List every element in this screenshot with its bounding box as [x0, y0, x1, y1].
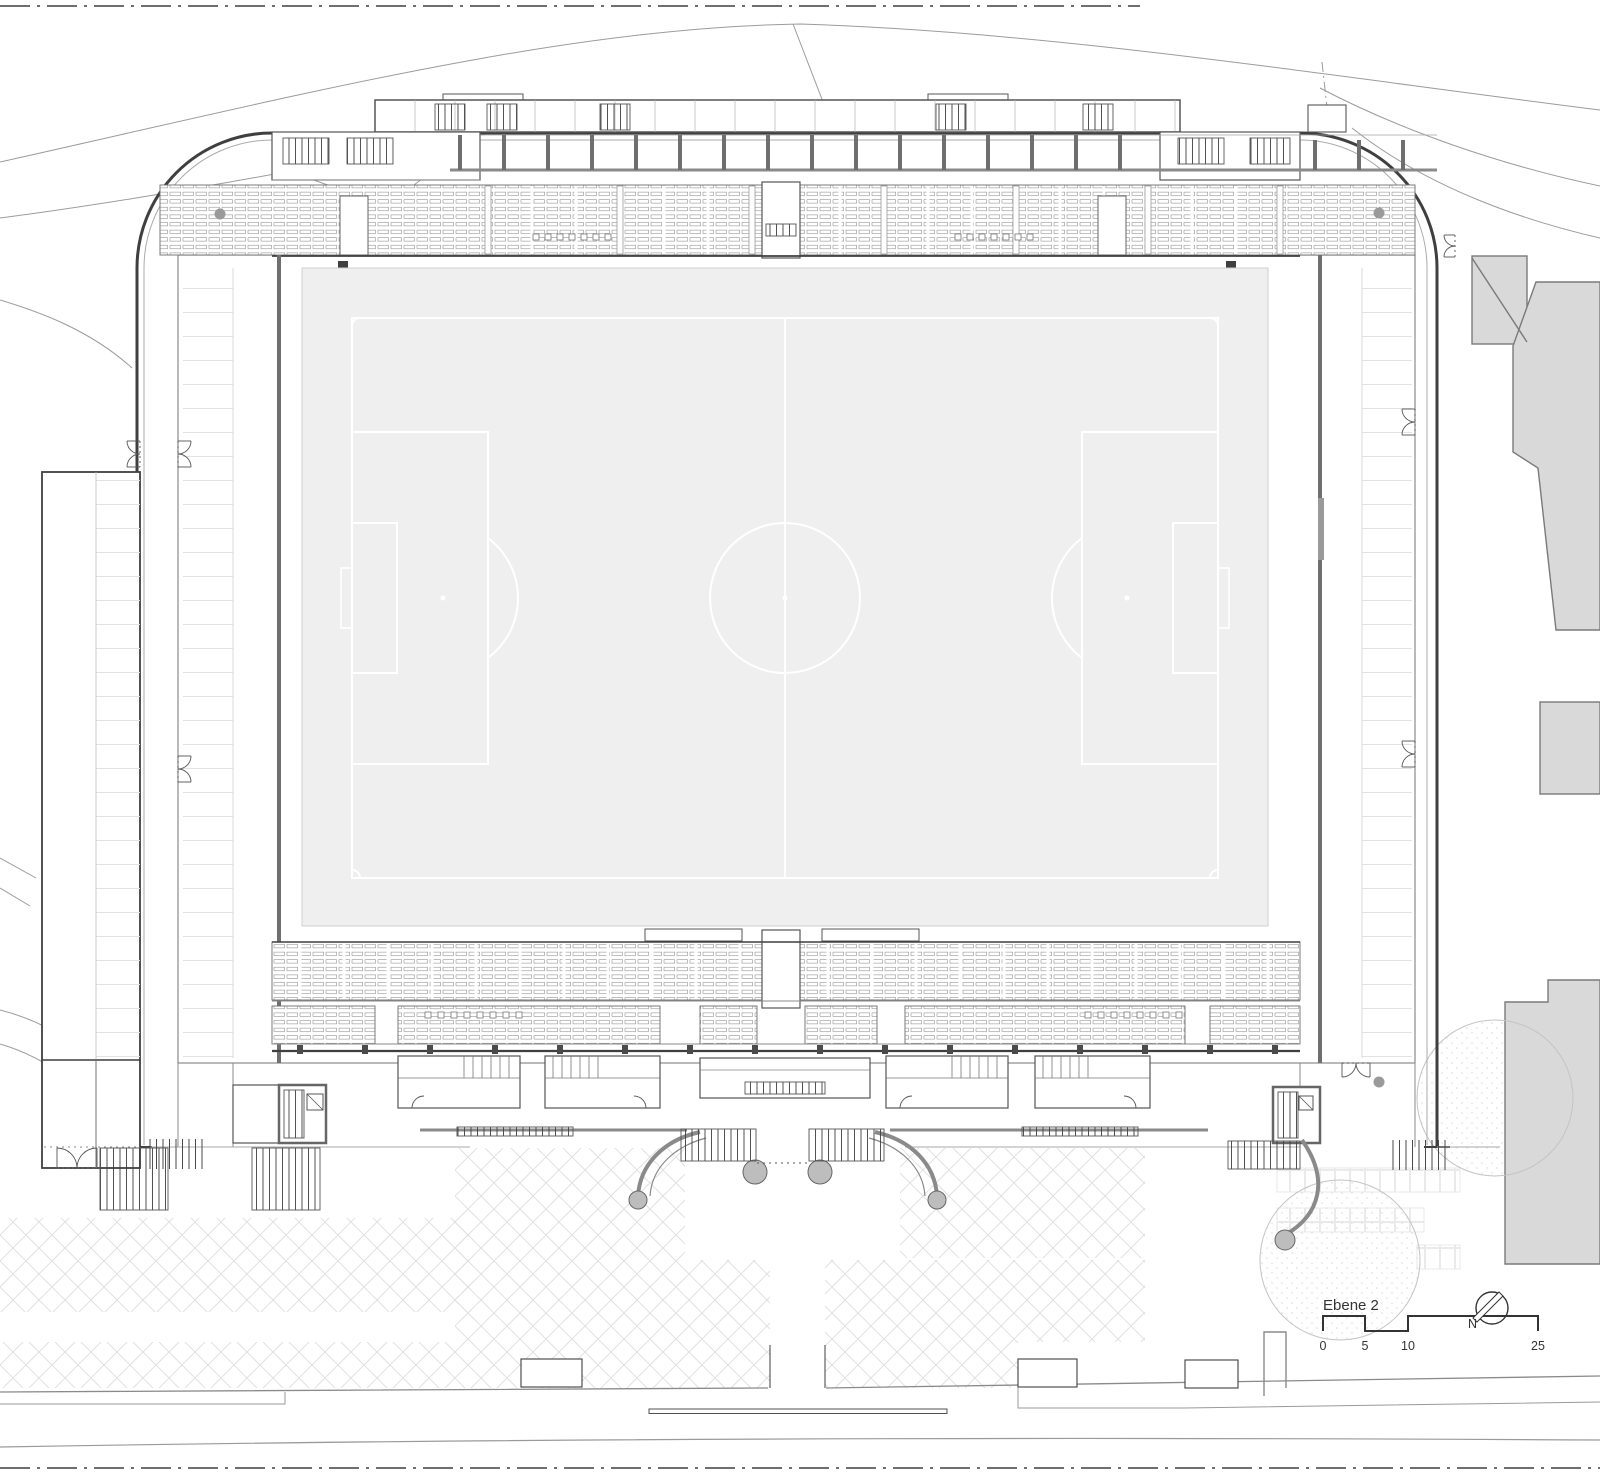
- seat-marker: [503, 1012, 509, 1018]
- camera-platform: [822, 929, 919, 941]
- wall-fragment: [1264, 1332, 1286, 1396]
- paving-patch: [0, 1342, 770, 1388]
- pier: [485, 186, 491, 254]
- seat-marker: [438, 1012, 444, 1018]
- seat-marker: [533, 234, 539, 240]
- column: [557, 1045, 563, 1054]
- column: [1077, 1045, 1083, 1054]
- column: [1118, 135, 1122, 170]
- seat-marker: [581, 234, 587, 240]
- column: [546, 135, 550, 170]
- column-base: [1275, 1230, 1295, 1250]
- column: [882, 1045, 888, 1054]
- stair-flight: [936, 104, 966, 130]
- seat-block: [272, 1006, 375, 1044]
- stair-flight: [1228, 1141, 1300, 1169]
- paving-patch: [825, 1342, 1018, 1388]
- seat-marker: [425, 1012, 431, 1018]
- stair-flight: [347, 138, 393, 164]
- shelter: [1185, 1360, 1238, 1388]
- stair-flight: [1022, 1127, 1138, 1136]
- stair-flight: [809, 1129, 884, 1161]
- stair-flight: [100, 1148, 168, 1210]
- seat-marker: [490, 1012, 496, 1018]
- street-edge: [0, 1438, 1600, 1447]
- stair-flight: [745, 1082, 825, 1094]
- seat-marker: [991, 234, 997, 240]
- pier: [617, 186, 623, 254]
- column: [817, 1045, 823, 1054]
- column: [1313, 140, 1317, 170]
- seat-block: [398, 1006, 660, 1044]
- pier: [749, 186, 755, 254]
- site-plan-drawing: Ebene 2 0 5 10 25 N: [0, 0, 1600, 1474]
- stair-flight: [284, 1090, 304, 1138]
- context-building: [1513, 282, 1600, 630]
- room-outline: [398, 1056, 520, 1108]
- seat-marker: [1098, 1012, 1104, 1018]
- column: [1272, 1045, 1278, 1054]
- tree-canopy: [1417, 1020, 1573, 1176]
- column: [1030, 135, 1034, 170]
- seat-block: [805, 1006, 877, 1044]
- parking-row: [1417, 1245, 1460, 1269]
- seat-marker: [545, 234, 551, 240]
- curb-step: [0, 1392, 285, 1404]
- column: [1074, 135, 1078, 170]
- north-arrow-circle: [1476, 1292, 1508, 1324]
- stair-flight: [600, 104, 630, 130]
- paving-patch: [455, 1260, 770, 1342]
- door-leaf-arc: [1444, 246, 1455, 257]
- pier: [1145, 186, 1151, 254]
- east-bowl-wall: [1318, 255, 1322, 1063]
- column: [502, 135, 506, 170]
- tree-dot: [1374, 208, 1385, 219]
- seat-marker: [1176, 1012, 1182, 1018]
- seat-marker: [979, 234, 985, 240]
- seat-marker: [1137, 1012, 1143, 1018]
- column-base: [629, 1191, 647, 1209]
- stair-flight: [681, 1129, 756, 1161]
- scale-tick-25: 25: [1531, 1339, 1545, 1353]
- column: [1207, 1045, 1213, 1054]
- level-label: Ebene 2: [1323, 1297, 1379, 1314]
- stair-flight: [435, 104, 465, 130]
- seat-marker: [593, 234, 599, 240]
- seat-block: [1210, 1006, 1300, 1044]
- penalty-spot-right: [1125, 596, 1130, 601]
- seat-marker: [1015, 234, 1021, 240]
- seat-marker: [464, 1012, 470, 1018]
- pier: [1277, 186, 1283, 254]
- tree-dot: [215, 209, 226, 220]
- seat-marker: [1085, 1012, 1091, 1018]
- pier: [1013, 186, 1019, 254]
- column-base: [928, 1191, 946, 1209]
- column: [752, 1045, 758, 1054]
- north-stand: [160, 94, 1437, 270]
- seat-marker: [1003, 234, 1009, 240]
- penalty-spot-left: [441, 596, 446, 601]
- stair-flight: [766, 224, 796, 236]
- stair-flight: [252, 1148, 320, 1210]
- context-building: [1540, 702, 1600, 794]
- column: [458, 135, 462, 170]
- stadium-site-plan-page: Ebene 2 0 5 10 25 N: [0, 0, 1600, 1474]
- north-arrow: N: [1468, 1292, 1508, 1331]
- east-terrace-strip: [1362, 268, 1412, 1058]
- vomitory: [1098, 196, 1126, 255]
- seat-marker: [1111, 1012, 1117, 1018]
- scale-tick-10: 10: [1401, 1339, 1415, 1353]
- column-base: [808, 1160, 832, 1184]
- column: [634, 135, 638, 170]
- scale-tick-0: 0: [1320, 1339, 1327, 1353]
- sw-rooms: [233, 1085, 279, 1143]
- seat-marker: [967, 234, 973, 240]
- seat-marker: [1163, 1012, 1169, 1018]
- plaza-paving: [0, 1148, 1145, 1388]
- column: [1142, 1045, 1148, 1054]
- room-cluster: [398, 1056, 520, 1108]
- double-door: [1342, 1063, 1370, 1077]
- seat-marker: [955, 234, 961, 240]
- room-cluster: [1035, 1056, 1150, 1108]
- curb-line: [0, 1388, 768, 1392]
- column: [947, 1045, 953, 1054]
- west-building: [42, 472, 140, 1168]
- column: [722, 135, 726, 170]
- paving-patch: [825, 1260, 1145, 1342]
- room-outline: [886, 1056, 1008, 1108]
- column: [810, 135, 814, 170]
- paving-patch: [0, 1218, 470, 1312]
- door-leaf-arc: [1356, 1063, 1370, 1077]
- stair-flight: [1083, 104, 1113, 130]
- stair-flight: [1250, 138, 1290, 164]
- north-arrow-needle: [1473, 1292, 1503, 1322]
- column: [854, 135, 858, 170]
- column: [1012, 1045, 1018, 1054]
- column: [362, 1045, 368, 1054]
- column-base: [743, 1160, 767, 1184]
- shelter: [1018, 1359, 1077, 1387]
- column: [622, 1045, 628, 1054]
- stair-flight: [487, 104, 517, 130]
- column: [590, 135, 594, 170]
- camera-platform: [645, 929, 742, 941]
- west-terrace-strip: [183, 268, 233, 1058]
- street-median: [649, 1409, 947, 1414]
- scale-tick-5: 5: [1362, 1339, 1369, 1353]
- center-spot: [783, 596, 788, 601]
- door-leaf-arc: [1444, 235, 1455, 246]
- seat-marker: [569, 234, 575, 240]
- column: [678, 135, 682, 170]
- double-door: [1444, 235, 1455, 257]
- column: [427, 1045, 433, 1054]
- north-label: N: [1468, 1317, 1477, 1331]
- players-tunnel: [1318, 498, 1324, 560]
- seat-marker: [451, 1012, 457, 1018]
- column: [986, 135, 990, 170]
- road-edge: [0, 858, 36, 906]
- stair-flight: [1178, 138, 1224, 164]
- ne-stair-room: [1308, 105, 1346, 132]
- stair-flight: [283, 138, 329, 164]
- room-cluster: [886, 1056, 1008, 1108]
- center-tunnel: [762, 182, 800, 258]
- tree-dot: [1374, 1077, 1385, 1088]
- seat-marker: [557, 234, 563, 240]
- column: [898, 135, 902, 170]
- door-leaf-arc: [1342, 1063, 1356, 1077]
- contour-line: [0, 300, 132, 368]
- column: [687, 1045, 693, 1054]
- seat-marker: [477, 1012, 483, 1018]
- room-cluster: [545, 1056, 660, 1108]
- column: [1357, 140, 1361, 170]
- column: [942, 135, 946, 170]
- curb-step: [1018, 1388, 1600, 1408]
- seat-block: [700, 1006, 757, 1044]
- column: [492, 1045, 498, 1054]
- seat-marker: [605, 234, 611, 240]
- shelter: [521, 1359, 582, 1387]
- seat-marker: [1150, 1012, 1156, 1018]
- stair-flight: [457, 1127, 573, 1136]
- column: [766, 135, 770, 170]
- column: [297, 1045, 303, 1054]
- west-building-stalls: [96, 480, 140, 1060]
- seat-marker: [516, 1012, 522, 1018]
- seat-marker: [1124, 1012, 1130, 1018]
- seat-marker: [1027, 234, 1033, 240]
- column: [1401, 140, 1405, 170]
- stair-flight: [1278, 1092, 1298, 1138]
- vomitory: [340, 196, 368, 255]
- pier: [881, 186, 887, 254]
